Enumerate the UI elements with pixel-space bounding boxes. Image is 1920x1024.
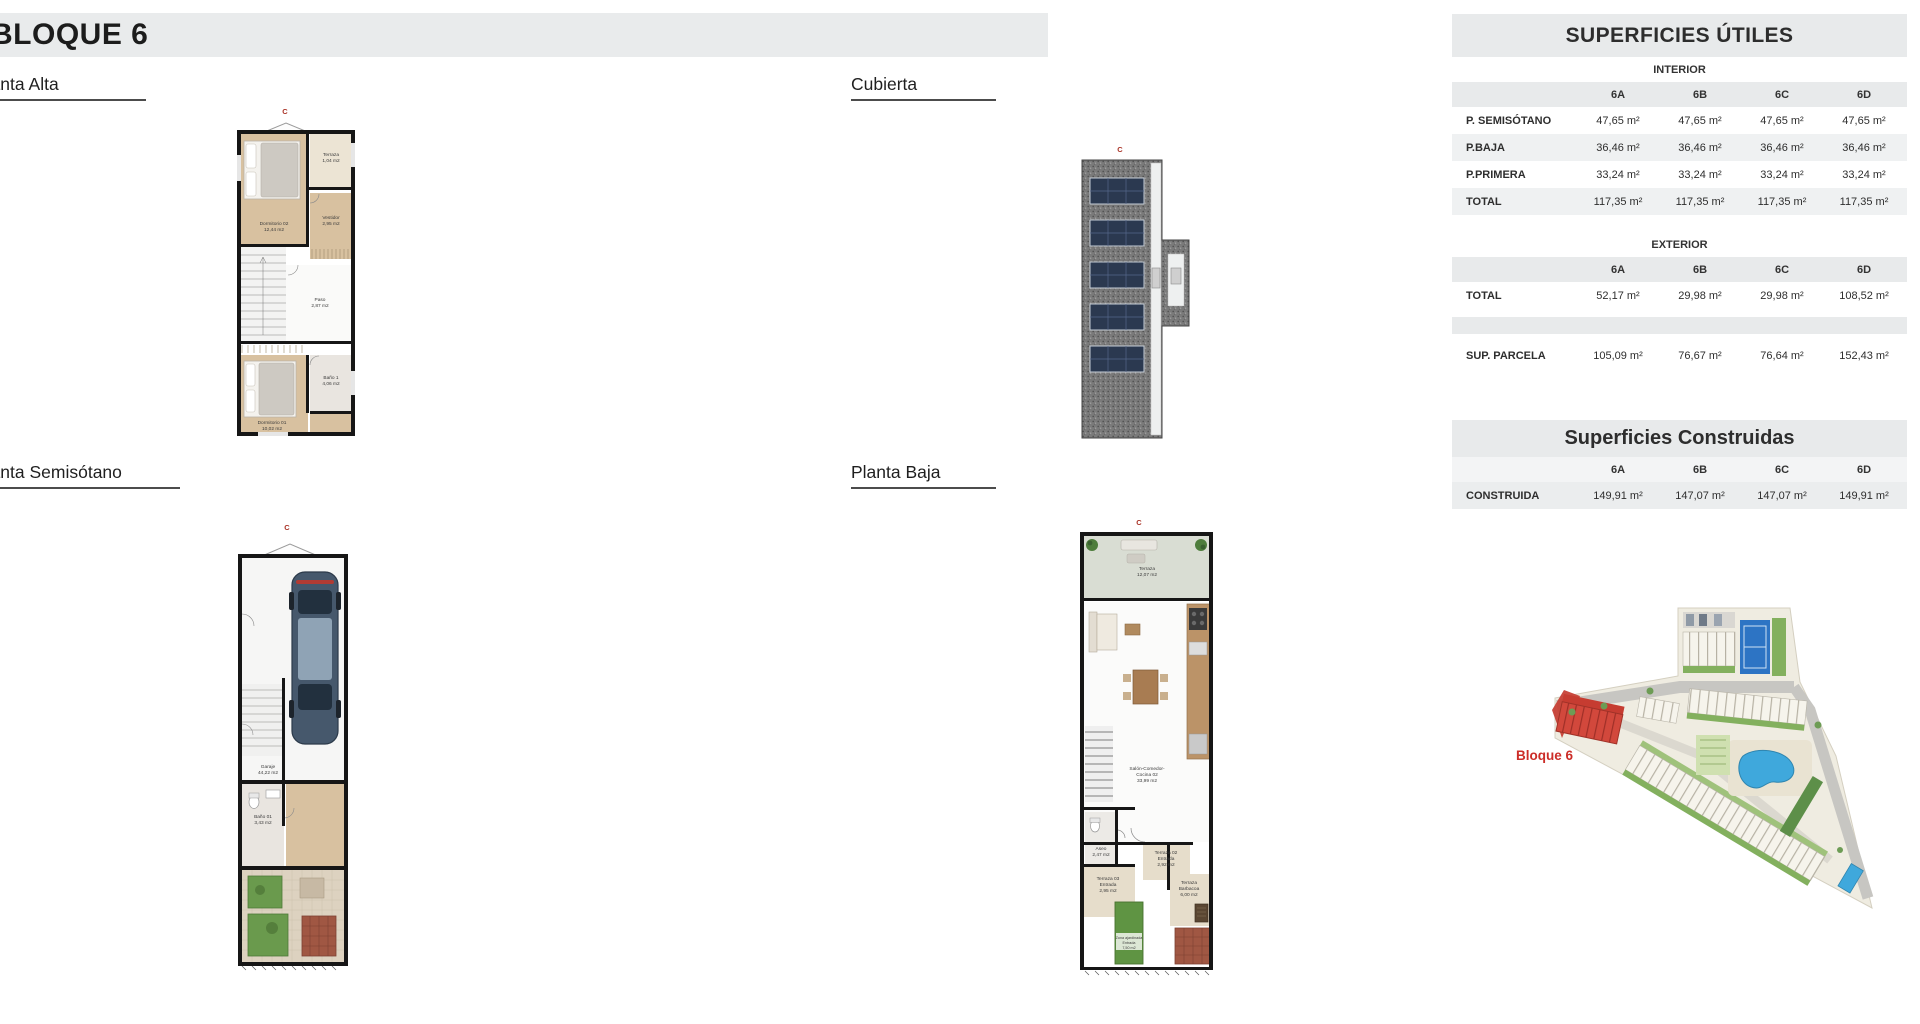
roof-walkway — [1151, 163, 1161, 435]
room-label: Terraza — [1139, 566, 1155, 572]
room-label: Baño 01 — [254, 814, 272, 820]
cell: 76,67 m² — [1659, 350, 1741, 362]
table-title: Superficies Construidas — [1452, 420, 1907, 457]
table-row: SUP. PARCELA 105,09 m² 76,67 m² 76,64 m²… — [1452, 342, 1907, 370]
site-plan: Bloque 6 — [1500, 560, 1912, 972]
cell: 36,46 m² — [1577, 142, 1659, 154]
cell: 147,07 m² — [1741, 490, 1823, 502]
table-spacer-band — [1452, 317, 1907, 334]
room-area: 2,92 m2 — [1157, 862, 1175, 868]
planta-semisotano-drawing: C — [230, 518, 356, 972]
cell: 76,64 m² — [1741, 350, 1823, 362]
fence-hatch — [242, 966, 336, 970]
page-title: BLOQUE 6 — [0, 13, 148, 57]
table-subheader: INTERIOR — [1452, 57, 1907, 82]
section-marker: C — [282, 107, 288, 116]
room-label: Zona ajardinada — [1116, 936, 1144, 940]
room-label: Entrada — [1158, 856, 1175, 862]
cell: 149,91 m² — [1823, 490, 1905, 502]
title-bar: BLOQUE 6 — [0, 13, 1048, 57]
col-header: 6D — [1823, 264, 1905, 276]
col-header: 6D — [1823, 89, 1905, 101]
room-label: Vestidor — [322, 215, 340, 221]
room-area: 33,99 m2 — [1137, 778, 1157, 784]
col-header: 6A — [1577, 89, 1659, 101]
room-area: 44,22 m2 — [258, 770, 278, 776]
cell: 33,24 m² — [1823, 169, 1905, 181]
room-area: 2,95 m2 — [1099, 888, 1117, 894]
heading-underline — [0, 487, 180, 489]
cell: 47,65 m² — [1823, 115, 1905, 127]
cell: 147,07 m² — [1659, 490, 1741, 502]
row-label: TOTAL — [1452, 196, 1577, 208]
cell: 117,35 m² — [1577, 196, 1659, 208]
cell: 117,35 m² — [1823, 196, 1905, 208]
col-header: 6D — [1823, 464, 1905, 476]
room-area: 12,44 m2 — [264, 227, 284, 233]
house-row — [1683, 632, 1735, 673]
roof-unit-icon — [1171, 268, 1181, 284]
section-marker: C — [1117, 145, 1123, 154]
room-area: 7,50 m2 — [1122, 946, 1135, 950]
superficies-construidas-table: Superficies Construidas 6A 6B 6C 6D CONS… — [1452, 420, 1907, 509]
room-label: Baño 1 — [323, 375, 339, 381]
planta-alta-plan: C — [228, 103, 364, 438]
room-label: Entrada — [1100, 882, 1117, 888]
cell: 29,98 m² — [1741, 290, 1823, 302]
table-column-header: 6A 6B 6C 6D — [1452, 257, 1907, 282]
green-strip — [1772, 618, 1786, 676]
cell: 152,43 m² — [1823, 350, 1905, 362]
room-label: Dormitorio 02 — [260, 221, 289, 227]
table-row: TOTAL 117,35 m² 117,35 m² 117,35 m² 117,… — [1452, 188, 1907, 215]
toilet-icon — [249, 793, 259, 809]
cell: 117,35 m² — [1741, 196, 1823, 208]
col-header: 6B — [1659, 264, 1741, 276]
room-label: Dormitorio 01 — [258, 420, 287, 426]
cell: 52,17 m² — [1577, 290, 1659, 302]
table-subheader: EXTERIOR — [1452, 232, 1907, 257]
room-label: Terraza 02 — [1155, 850, 1178, 856]
cell: 117,35 m² — [1659, 196, 1741, 208]
room-label: Entrada — [1123, 941, 1137, 945]
cubierta-drawing: C — [1072, 140, 1192, 446]
col-header: 6B — [1659, 464, 1741, 476]
col-header: 6C — [1741, 464, 1823, 476]
plan-sheet: BLOQUE 6 Planta Alta Cubierta Planta Sem… — [0, 0, 1920, 1024]
planter-icon — [302, 916, 336, 956]
col-header: 6C — [1741, 89, 1823, 101]
bed-icon — [244, 141, 300, 199]
cell: 33,24 m² — [1659, 169, 1741, 181]
cell: 36,46 m² — [1823, 142, 1905, 154]
room-label: Terraza — [323, 152, 339, 158]
heading-planta-semisotano: Planta Semisótano — [0, 462, 122, 483]
cell: 105,09 m² — [1577, 350, 1659, 362]
roof-unit-icon — [1152, 268, 1160, 288]
heading-underline — [851, 99, 996, 101]
bbq-icon — [1195, 904, 1208, 922]
room-area: 4,06 m2 — [322, 381, 340, 387]
stairs-icon — [242, 684, 282, 756]
planter-icon — [1175, 928, 1210, 964]
superficies-utiles-table: SUPERFICIES ÚTILES INTERIOR 6A 6B 6C 6D … — [1452, 14, 1907, 370]
heading-underline — [0, 99, 146, 101]
cell: 149,91 m² — [1577, 490, 1659, 502]
planta-alta-drawing: C — [228, 103, 364, 438]
room-area: 2,47 m2 — [1092, 852, 1110, 858]
room-area: 12,07 m2 — [1137, 572, 1157, 578]
room-area: 1,04 m2 — [322, 158, 340, 164]
room-area: 2,87 m2 — [311, 303, 329, 309]
room-label: Aseo — [1096, 846, 1107, 852]
col-header: 6B — [1659, 89, 1741, 101]
room-area: 2,95 m2 — [322, 221, 340, 227]
section-marker: C — [284, 523, 290, 532]
heading-planta-baja: Planta Baja — [851, 462, 941, 483]
col-header: 6C — [1741, 264, 1823, 276]
cell: 33,24 m² — [1741, 169, 1823, 181]
cubierta-plan: C — [1072, 140, 1192, 446]
col-header: 6A — [1577, 264, 1659, 276]
cell: 47,65 m² — [1577, 115, 1659, 127]
coffee-table-icon — [1125, 624, 1140, 635]
table-icon — [300, 878, 324, 898]
garden-icon — [248, 876, 288, 956]
cell: 29,98 m² — [1659, 290, 1741, 302]
cell: 47,65 m² — [1741, 115, 1823, 127]
table-column-header: 6A 6B 6C 6D — [1452, 457, 1907, 482]
room-label: Salón-Comedor- — [1129, 766, 1165, 772]
planta-baja-plan: C — [1075, 512, 1218, 980]
bloque6-site-label: Bloque 6 — [1516, 748, 1573, 763]
row-label: CONSTRUIDA — [1452, 490, 1577, 502]
tennis-court-icon — [1740, 620, 1770, 674]
room-area: 3,43 m2 — [254, 820, 272, 826]
planta-semisotano-plan: C — [230, 518, 356, 972]
row-label: SUP. PARCELA — [1452, 350, 1577, 362]
heading-underline — [851, 487, 996, 489]
table-row: P.BAJA 36,46 m² 36,46 m² 36,46 m² 36,46 … — [1452, 134, 1907, 161]
sink-icon — [266, 790, 280, 798]
room-label: Terraza 03 — [1097, 876, 1120, 882]
table-row: P. SEMISÓTANO 47,65 m² 47,65 m² 47,65 m²… — [1452, 107, 1907, 134]
row-label: P.PRIMERA — [1452, 169, 1577, 181]
green-area — [1696, 735, 1730, 775]
car-icon — [289, 572, 341, 744]
toilet-icon — [1090, 818, 1100, 832]
parking-icon — [1683, 612, 1735, 628]
section-marker: C — [1136, 518, 1142, 527]
cell: 33,24 m² — [1577, 169, 1659, 181]
cell: 36,46 m² — [1741, 142, 1823, 154]
room-label: Paso — [315, 297, 326, 303]
kitchen-counter-icon — [1187, 604, 1210, 759]
col-header: 6A — [1577, 464, 1659, 476]
heading-cubierta: Cubierta — [851, 74, 917, 95]
bed-icon — [244, 361, 296, 417]
row-label: P. SEMISÓTANO — [1452, 115, 1577, 127]
fence-hatch — [1085, 971, 1209, 975]
room-label: Garaje — [261, 764, 276, 770]
cell: 47,65 m² — [1659, 115, 1741, 127]
stairs-icon — [1085, 726, 1113, 802]
table-title: SUPERFICIES ÚTILES — [1452, 14, 1907, 57]
row-label: TOTAL — [1452, 290, 1577, 302]
room-label: Cocina 02 — [1136, 772, 1158, 778]
sofa-icon — [1089, 612, 1117, 652]
cell: 36,46 m² — [1659, 142, 1741, 154]
table-row: P.PRIMERA 33,24 m² 33,24 m² 33,24 m² 33,… — [1452, 161, 1907, 188]
table-row: TOTAL 52,17 m² 29,98 m² 29,98 m² 108,52 … — [1452, 282, 1907, 310]
cell: 108,52 m² — [1823, 290, 1905, 302]
room-area: 10,02 m2 — [262, 426, 282, 432]
site-plan-map: Bloque 6 — [1500, 560, 1912, 972]
room-label: Terraza — [1181, 880, 1197, 886]
room-area: 6,00 m2 — [1180, 892, 1198, 898]
table-column-header: 6A 6B 6C 6D — [1452, 82, 1907, 107]
room-label: Barbacoa — [1179, 886, 1200, 892]
row-label: P.BAJA — [1452, 142, 1577, 154]
heading-planta-alta: Planta Alta — [0, 74, 59, 95]
table-row: CONSTRUIDA 149,91 m² 147,07 m² 147,07 m²… — [1452, 482, 1907, 509]
planta-baja-drawing: C — [1075, 512, 1218, 980]
